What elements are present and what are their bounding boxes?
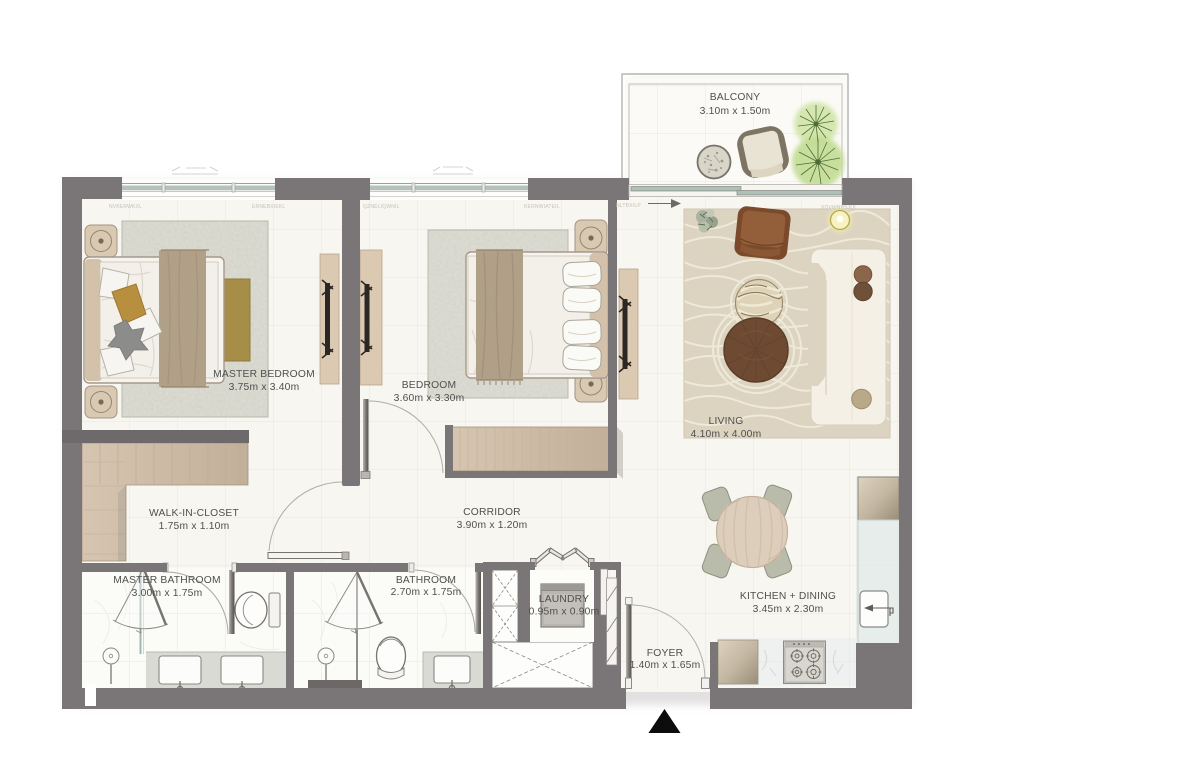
svg-text:3.10m x 1.50m: 3.10m x 1.50m (700, 106, 771, 117)
svg-text:3.90m x 1.20m: 3.90m x 1.20m (457, 520, 528, 531)
svg-text:3.60m x 3.30m: 3.60m x 3.30m (394, 393, 465, 404)
svg-text:MASTER BEDROOM: MASTER BEDROOM (213, 369, 315, 380)
svg-text:KERNWIATEIL: KERNWIATEIL (524, 204, 560, 210)
svg-text:NLTBXILP: NLTBXILP (616, 203, 641, 209)
svg-text:XDVWNBSJUL: XDVWNBSJUL (821, 205, 857, 211)
svg-text:CORRIDOR: CORRIDOR (463, 507, 521, 518)
svg-text:0.95m x 0.90m: 0.95m x 0.90m (529, 607, 600, 618)
svg-text:3.00m x 1.75m: 3.00m x 1.75m (132, 588, 203, 599)
svg-text:3.45m x 2.30m: 3.45m x 2.30m (753, 604, 824, 615)
svg-text:1.40m x 1.65m: 1.40m x 1.65m (630, 660, 701, 671)
svg-text:WALK-IN-CLOSET: WALK-IN-CLOSET (149, 508, 239, 519)
svg-text:BATHROOM: BATHROOM (396, 575, 456, 586)
svg-text:2.70m x 1.75m: 2.70m x 1.75m (391, 587, 462, 598)
svg-text:BEDROOM: BEDROOM (402, 380, 457, 391)
svg-text:QZNELIQWNIL: QZNELIQWNIL (363, 204, 400, 210)
svg-text:4.10m x 4.00m: 4.10m x 4.00m (691, 429, 762, 440)
svg-text:LIVING: LIVING (709, 416, 744, 427)
svg-text:MASTER BATHROOM: MASTER BATHROOM (113, 575, 221, 586)
svg-text:KITCHEN + DINING: KITCHEN + DINING (740, 591, 836, 602)
svg-text:NVKERWKXL: NVKERWKXL (109, 204, 142, 210)
svg-text:FOYER: FOYER (647, 648, 683, 659)
svg-text:BALCONY: BALCONY (710, 92, 761, 103)
svg-text:1.75m x 1.10m: 1.75m x 1.10m (159, 521, 230, 532)
svg-text:ERNEBXIEKL: ERNEBXIEKL (252, 204, 285, 210)
svg-text:LAUNDRY: LAUNDRY (539, 594, 589, 605)
svg-text:3.75m x 3.40m: 3.75m x 3.40m (229, 382, 300, 393)
